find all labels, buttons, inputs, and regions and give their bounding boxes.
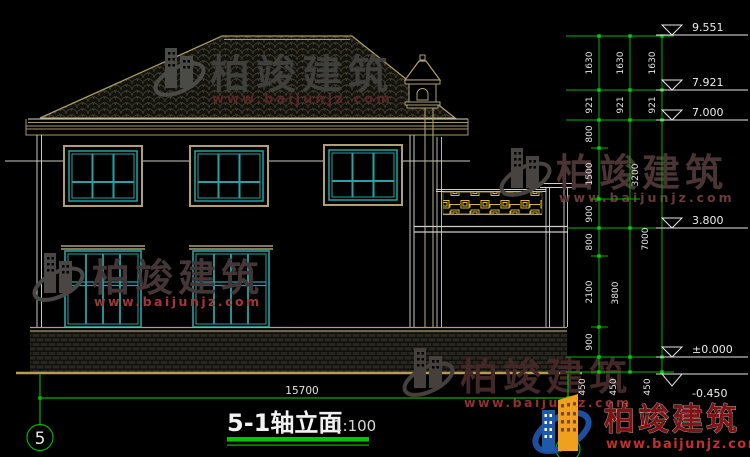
watermark-url: www.baijunjz.com (94, 294, 262, 309)
window-2f-left (64, 146, 142, 206)
watermark-brand: 柏竣建筑 (460, 355, 632, 399)
axis-label-left: 5 (35, 429, 46, 449)
lattice-screen (443, 192, 542, 214)
dim-text: 921 (585, 96, 595, 113)
dim-tick (628, 355, 631, 358)
dim-text: 800 (585, 233, 595, 250)
bottom-dimension: 15700 (285, 385, 318, 397)
dim-tick (597, 34, 600, 37)
title-block: 5-1轴立面 1:100 (227, 409, 376, 446)
dim-text: 900 (585, 333, 595, 350)
dim-tick (597, 197, 600, 200)
dim-text: 450 (578, 378, 588, 395)
drawing-scale: 1:100 (333, 417, 376, 435)
watermark-brand: 柏竣建筑 (556, 151, 728, 195)
dim-chain-outer: 1630 921 7000 450 (641, 51, 658, 395)
dim-text: 3800 (611, 281, 621, 304)
dim-tick (597, 226, 600, 229)
elevation-gate-wall: 3.800 (692, 214, 724, 227)
elevation-eave: 7.000 (692, 106, 724, 119)
gate-pillar (540, 184, 573, 328)
dim-tick (628, 226, 631, 229)
dim-tick (628, 88, 631, 91)
elevation-floor: ±0.000 (692, 343, 733, 356)
dim-chain-inner: 1630 921 800 1500 900 800 2100 900 450 (578, 51, 595, 395)
dim-text: 3200 (631, 163, 641, 186)
dim-text: 450 (643, 378, 653, 395)
dim-tick (597, 254, 600, 257)
dim-text: 7000 (641, 227, 651, 250)
elevation-ground: -0.450 (692, 387, 727, 400)
dim-tick (597, 325, 600, 328)
dim-text: 1630 (648, 51, 658, 74)
elevation-drawing: 柏竣建筑 www.baijunjz.com 柏竣建筑 www.baijunjz.… (0, 0, 750, 457)
cad-elevation-screenshot: 柏竣建筑 www.baijunjz.com 柏竣建筑 www.baijunjz.… (0, 0, 750, 457)
dim-tick (597, 146, 600, 149)
dim-text: 900 (585, 205, 595, 222)
dim-tick (597, 370, 600, 373)
window-2f-center (190, 146, 268, 206)
elevation-ridge: 9.551 (692, 21, 724, 34)
dim-tick (660, 370, 663, 373)
dim-text: 800 (585, 125, 595, 142)
dim-tick (597, 88, 600, 91)
cupola-column (425, 108, 433, 327)
watermark-url: www.baijunjz.com (212, 92, 393, 107)
dim-tick (628, 118, 631, 121)
drawing-title: 5-1轴立面 (227, 409, 342, 437)
dim-text: 1630 (616, 51, 626, 74)
title-underline-thin (227, 445, 369, 446)
dim-tick (597, 118, 600, 121)
dim-tick (628, 370, 631, 373)
dim-text: 450 (609, 378, 619, 395)
dim-tick (628, 34, 631, 37)
brand-url: www.baijunjz.com (606, 437, 750, 452)
elevation-roof-mid: 7.921 (692, 76, 724, 89)
dim-chain-middle: 1630 921 3200 3800 450 (609, 51, 641, 395)
brand-logo-block: 柏竣建筑 www.baijunjz.com (529, 394, 750, 457)
brand-name: 柏竣建筑 (604, 402, 740, 438)
dim-text: 921 (616, 96, 626, 113)
dim-text: 921 (648, 96, 658, 113)
dim-text: 2100 (585, 280, 595, 303)
watermark-url: www.baijunjz.com (559, 190, 735, 205)
dim-tick (597, 355, 600, 358)
eave-cornice (26, 119, 468, 135)
dim-text: 1630 (585, 51, 595, 74)
dim-text: 1500 (585, 162, 595, 185)
watermark-logo (497, 148, 554, 201)
window-2f-right (324, 145, 402, 205)
title-underline-thick (227, 437, 369, 442)
